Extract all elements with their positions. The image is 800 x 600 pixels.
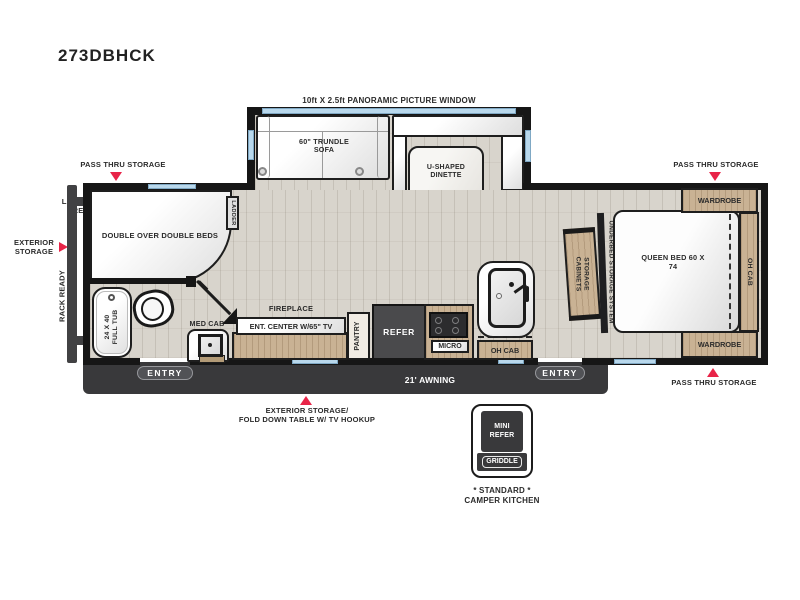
pass-thru-storage-right-bottom-label: PASS THRU STORAGE bbox=[664, 379, 764, 388]
ent-center-label: ENT. CENTER W/65" TV bbox=[250, 322, 333, 331]
sofa-leg-right bbox=[355, 167, 364, 176]
burner-icon bbox=[452, 317, 459, 324]
left-wall bbox=[83, 183, 90, 365]
slideout-left-window bbox=[248, 130, 254, 160]
bottom-wall-seg3 bbox=[582, 358, 768, 365]
tub-drain bbox=[108, 294, 115, 301]
fireplace-label: FIREPLACE bbox=[236, 305, 346, 314]
trundle-sofa-label: 60" TRUNDLE SOFA bbox=[298, 138, 350, 155]
bunk-ladder-label: LADDER bbox=[230, 200, 236, 225]
pass-thru-left-arrow-icon bbox=[110, 172, 122, 181]
kitchen-sink bbox=[488, 268, 526, 328]
oh-cab-dashes bbox=[478, 336, 532, 338]
refer-label: REFER bbox=[383, 327, 415, 337]
sink-drain bbox=[496, 293, 502, 299]
storage-cabinets-label: STORAGE CABINETS bbox=[574, 246, 589, 302]
entry-rear-label: ENTRY bbox=[542, 368, 578, 378]
kitchen-oh-cab: OH CAB bbox=[477, 340, 533, 360]
camper-kitchen-caption-line2: CAMPER KITCHEN bbox=[452, 496, 552, 505]
double-beds-label: DOUBLE OVER DOUBLE BEDS bbox=[95, 232, 225, 241]
entry-rear-badge: ENTRY bbox=[535, 366, 585, 380]
wardrobe-bottom: WARDROBE bbox=[681, 331, 758, 358]
griddle-label: GRIDDLE bbox=[482, 456, 522, 469]
bedroom-window bbox=[614, 359, 656, 364]
camper-kitchen-caption-line1: * STANDARD * bbox=[452, 486, 552, 495]
bunk-window bbox=[148, 184, 196, 189]
fold-down-label-line2: FOLD DOWN TABLE W/ TV HOOKUP bbox=[212, 416, 402, 425]
bike-rack-bar bbox=[67, 185, 77, 363]
ent-center: ENT. CENTER W/65" TV bbox=[236, 317, 346, 335]
faucet-body bbox=[525, 286, 529, 302]
wardrobe-top: WARDROBE bbox=[681, 188, 758, 213]
griddle: GRIDDLE bbox=[477, 453, 527, 471]
wardrobe-top-label: WARDROBE bbox=[698, 196, 741, 205]
panoramic-window-label: 10ft X 2.5ft PANORAMIC PICTURE WINDOW bbox=[264, 96, 514, 105]
right-wall bbox=[761, 183, 768, 365]
burner-icon bbox=[435, 317, 442, 324]
tv-stand bbox=[232, 332, 348, 360]
burner-icon bbox=[452, 327, 459, 334]
med-cab-label: MED CAB bbox=[184, 320, 230, 328]
floorplan-canvas: 273DBHCK PASS THRU STORAGE LADDER PREP E… bbox=[0, 0, 800, 600]
refrigerator: REFER bbox=[372, 304, 426, 360]
wardrobe-bottom-label: WARDROBE bbox=[698, 340, 741, 349]
bottom-wall-seg1 bbox=[83, 358, 140, 365]
page-title: 273DBHCK bbox=[58, 46, 156, 66]
pass-thru-storage-left-label: PASS THRU STORAGE bbox=[77, 161, 169, 170]
dinette-bench-right bbox=[501, 135, 524, 191]
pass-thru-storage-right-top-label: PASS THRU STORAGE bbox=[666, 161, 766, 170]
burner-icon bbox=[435, 327, 442, 334]
tub-label: 24 X 40 FULL TUB bbox=[104, 305, 120, 349]
entry-front-badge: ENTRY bbox=[137, 366, 193, 380]
pass-thru-right-top-arrow-icon bbox=[709, 172, 721, 181]
bath-wall bbox=[90, 278, 192, 284]
panoramic-window bbox=[262, 108, 516, 114]
queen-bed-label: QUEEN BED 60 X 74 bbox=[638, 254, 708, 271]
slideout-right-window bbox=[525, 130, 531, 162]
exterior-storage-label: EXTERIOR STORAGE bbox=[10, 239, 58, 257]
pantry-label: PANTRY bbox=[354, 321, 362, 350]
faucet-knob bbox=[509, 282, 514, 287]
dinette-bench-left bbox=[392, 135, 407, 195]
pass-thru-right-bottom-arrow-icon bbox=[707, 368, 719, 377]
dinette-bench-back bbox=[392, 115, 524, 137]
kitchen-oh-cab-label: OH CAB bbox=[491, 346, 519, 355]
sofa-back-line bbox=[258, 131, 388, 132]
fold-down-arrow-icon bbox=[300, 396, 312, 405]
micro-label: MICRO bbox=[438, 343, 461, 350]
bath-wall-cap bbox=[186, 276, 196, 287]
microwave: MICRO bbox=[431, 340, 469, 353]
entry-front-label: ENTRY bbox=[147, 368, 183, 378]
queen-bed bbox=[613, 210, 740, 333]
med-cab-drain bbox=[208, 343, 212, 347]
bedroom-oh-cab-label: OH CAB bbox=[745, 258, 753, 286]
dinette-label: U-SHAPED DINETTE bbox=[414, 164, 478, 181]
bed-foot-dashes bbox=[729, 214, 731, 329]
mini-refer-label: MINI REFER bbox=[485, 423, 519, 440]
sofa-leg-left bbox=[258, 167, 267, 176]
awning-label: 21' AWNING bbox=[390, 375, 470, 385]
mini-refer: MINI REFER bbox=[481, 411, 523, 452]
stove-cooktop bbox=[429, 312, 468, 338]
sofa-armrest-right bbox=[377, 116, 390, 178]
